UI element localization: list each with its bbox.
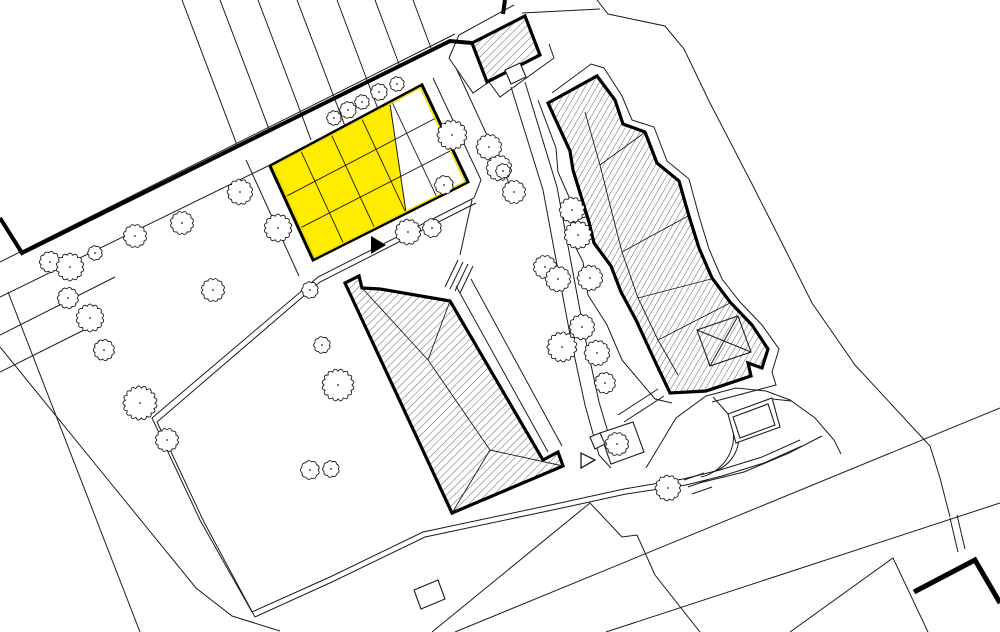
tree-symbol-trunk bbox=[309, 469, 311, 471]
tree-symbol-trunk bbox=[67, 297, 69, 299]
tree-symbol-trunk bbox=[451, 134, 453, 136]
site-plan-svg bbox=[0, 0, 1000, 632]
tree-symbol-trunk bbox=[581, 326, 583, 328]
tree-symbol-trunk bbox=[596, 352, 598, 354]
tree-symbol-trunk bbox=[604, 382, 606, 384]
site-plan bbox=[0, 0, 1000, 632]
tree-symbol-trunk bbox=[181, 222, 183, 224]
site-boundary-stub bbox=[503, 0, 505, 14]
bush-symbol-trunk bbox=[378, 91, 380, 93]
tree-symbol-trunk bbox=[616, 443, 618, 445]
tree-symbol-trunk bbox=[309, 289, 311, 291]
tree-symbol-trunk bbox=[89, 317, 91, 319]
tree-symbol-trunk bbox=[431, 227, 433, 229]
tree-symbol-trunk bbox=[443, 184, 445, 186]
tree-symbol-trunk bbox=[139, 402, 141, 404]
tree-symbol-trunk bbox=[49, 261, 51, 263]
plan-background bbox=[0, 0, 1000, 632]
tree-symbol-trunk bbox=[557, 278, 559, 280]
tree-symbol-trunk bbox=[330, 468, 332, 470]
tree-symbol-trunk bbox=[321, 344, 323, 346]
tree-symbol-trunk bbox=[488, 146, 490, 148]
tree-symbol-trunk bbox=[103, 349, 105, 351]
tree-symbol-trunk bbox=[166, 439, 168, 441]
bush-symbol-trunk bbox=[333, 117, 335, 119]
tree-symbol-trunk bbox=[94, 252, 96, 254]
tree-symbol-trunk bbox=[134, 235, 136, 237]
tree-symbol-trunk bbox=[212, 289, 214, 291]
tree-symbol-trunk bbox=[239, 191, 241, 193]
tree-symbol-trunk bbox=[407, 231, 409, 233]
tree-symbol-trunk bbox=[513, 191, 515, 193]
tree-symbol-trunk bbox=[502, 170, 504, 172]
tree-symbol-trunk bbox=[277, 227, 279, 229]
tree-symbol-trunk bbox=[337, 384, 339, 386]
tree-symbol-trunk bbox=[544, 266, 546, 268]
bush-symbol-trunk bbox=[361, 101, 363, 103]
tree-symbol-trunk bbox=[571, 209, 573, 211]
tree-symbol-trunk bbox=[561, 346, 563, 348]
bush-symbol-trunk bbox=[347, 109, 349, 111]
tree-symbol-trunk bbox=[577, 234, 579, 236]
tree-symbol-trunk bbox=[69, 266, 71, 268]
bush-symbol-trunk bbox=[396, 83, 398, 85]
tree-symbol-trunk bbox=[589, 277, 591, 279]
tree-symbol-trunk bbox=[667, 487, 669, 489]
